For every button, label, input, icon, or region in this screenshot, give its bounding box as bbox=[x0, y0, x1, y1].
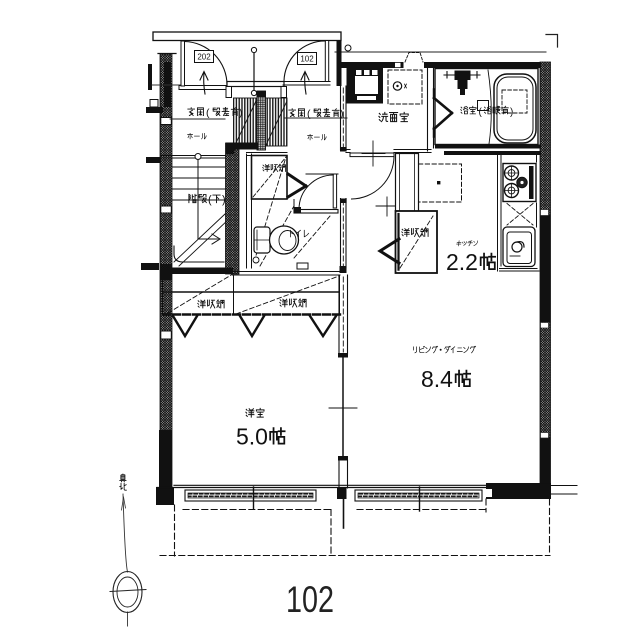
svg-text:): ) bbox=[510, 107, 513, 118]
svg-text:2.2: 2.2 bbox=[446, 249, 478, 275]
svg-text:102: 102 bbox=[286, 579, 334, 620]
svg-text:202: 202 bbox=[197, 53, 211, 62]
svg-text:8.4: 8.4 bbox=[421, 366, 453, 392]
svg-text:(: ( bbox=[208, 194, 212, 206]
svg-text:5.0: 5.0 bbox=[236, 424, 268, 450]
svg-text:(: ( bbox=[206, 107, 210, 119]
svg-text:102: 102 bbox=[300, 55, 314, 64]
svg-text:): ) bbox=[239, 107, 243, 119]
